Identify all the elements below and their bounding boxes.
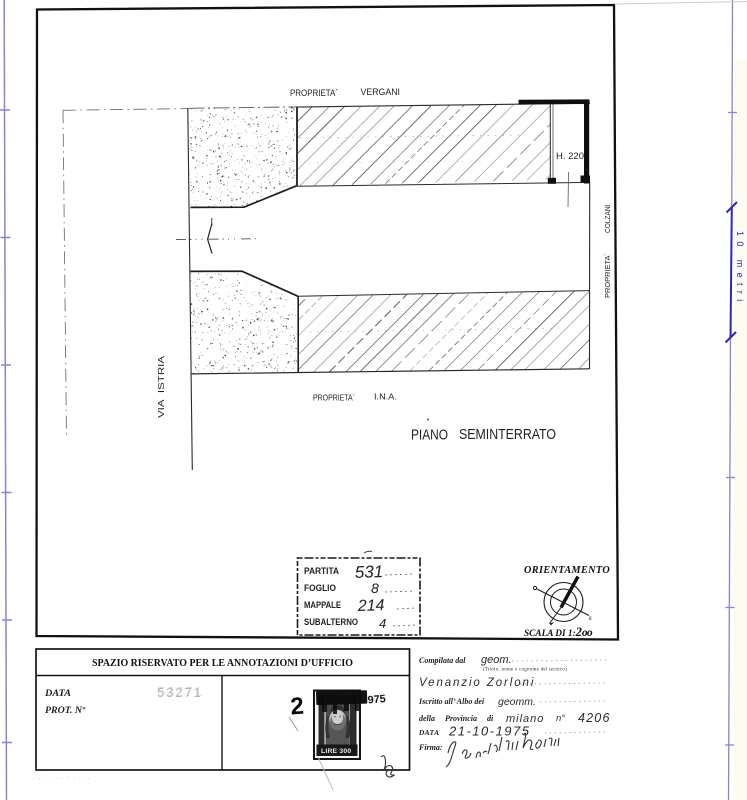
- svg-text:COLZANI: COLZANI: [603, 205, 612, 234]
- svg-text:n°: n°: [556, 713, 565, 724]
- svg-text:ORIENTAMENTO: ORIENTAMENTO: [524, 565, 610, 576]
- svg-text:Firma:: Firma:: [418, 743, 443, 752]
- svg-text:I.N.A.: I.N.A.: [374, 392, 397, 402]
- svg-text:(Titolo, nome e cognome del te: (Titolo, nome e cognome del tecnico): [483, 668, 567, 673]
- svg-text:PROPRIETA´: PROPRIETA´: [603, 253, 612, 298]
- svg-text:geom.: geom.: [481, 654, 512, 666]
- svg-text:PROPRIETA´: PROPRIETA´: [290, 88, 338, 98]
- svg-text:4: 4: [379, 616, 386, 631]
- svg-text:geomm.: geomm.: [498, 696, 536, 708]
- svg-text:SPAZIO RISERVATO PER LE ANNOTA: SPAZIO RISERVATO PER LE ANNOTAZIONI D’UF…: [92, 658, 353, 669]
- svg-text:LIRE 300: LIRE 300: [321, 748, 351, 755]
- svg-text:PIANO: PIANO: [411, 428, 448, 444]
- svg-text:PROT. Nº: PROT. Nº: [45, 705, 85, 715]
- svg-text:Compilata dal: Compilata dal: [419, 656, 466, 665]
- svg-text:PARTITA: PARTITA: [304, 566, 339, 576]
- svg-text:531: 531: [354, 562, 383, 582]
- svg-text:PROPRIETA´: PROPRIETA´: [313, 393, 355, 403]
- svg-text:SEMINTERRATO: SEMINTERRATO: [459, 427, 556, 443]
- svg-text:Venanzio Zorloni: Venanzio Zorloni: [419, 677, 535, 689]
- svg-text:21-10-1975: 21-10-1975: [448, 724, 531, 739]
- svg-text:VERGANI: VERGANI: [361, 87, 401, 97]
- svg-text:DATA: DATA: [418, 729, 439, 737]
- svg-text:Iscritto all’ Albo dei: Iscritto all’ Albo dei: [418, 697, 485, 706]
- svg-text:MAPPALE: MAPPALE: [304, 600, 341, 610]
- svg-text:214: 214: [357, 597, 385, 615]
- svg-text:SUBALTERNO: SUBALTERNO: [304, 617, 358, 627]
- svg-text:FOGLIO: FOGLIO: [304, 583, 336, 593]
- svg-text:53271: 53271: [158, 685, 204, 699]
- svg-text:4206: 4206: [578, 711, 611, 725]
- svg-text:DATA: DATA: [44, 688, 71, 698]
- svg-text:975: 975: [367, 693, 386, 707]
- svg-text:10 metri: 10 metri: [735, 231, 745, 307]
- svg-text:H. 220: H. 220: [556, 151, 584, 161]
- svg-text:VIA ISTRIA: VIA ISTRIA: [156, 356, 166, 418]
- svg-text:. , : . . · - . ·· .: . , : . . · - . ·· .: [33, 774, 91, 781]
- svg-text:2: 2: [290, 693, 305, 721]
- svg-text:8: 8: [371, 580, 379, 596]
- svg-text:ε: ε: [589, 615, 592, 622]
- svg-text:della Provincia di: della Provincia di: [419, 714, 494, 723]
